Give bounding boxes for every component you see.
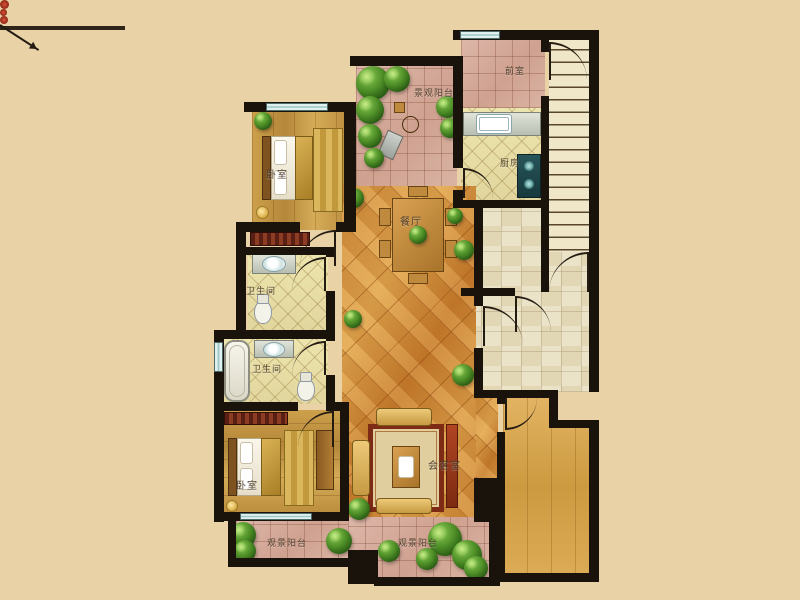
window <box>460 31 500 39</box>
wall <box>244 222 300 232</box>
room-label: 卧室 <box>266 166 288 181</box>
wardrobe <box>224 412 288 425</box>
plant <box>452 364 474 386</box>
room-label: 前室 <box>505 64 525 77</box>
wall <box>541 96 549 208</box>
bathroom-basin <box>262 256 286 272</box>
wall <box>453 56 463 168</box>
room-label: 会客室 <box>428 457 461 472</box>
dining-chair <box>379 240 391 258</box>
dining-chair <box>408 186 428 197</box>
room-label: 餐厅 <box>400 213 422 228</box>
flower <box>0 9 7 16</box>
window <box>266 103 328 111</box>
wall <box>541 208 549 292</box>
kitchen-sink <box>476 114 512 134</box>
plant <box>378 540 400 562</box>
toilet <box>254 300 272 324</box>
toilet <box>297 378 315 401</box>
room-label: 卫生间 <box>246 284 276 297</box>
decor-rug <box>313 128 343 212</box>
plant <box>454 240 474 260</box>
window <box>240 513 312 520</box>
dining-chair <box>379 208 391 226</box>
garden-table <box>402 116 419 133</box>
wall <box>497 573 599 582</box>
room-label: 景观阳台 <box>414 86 454 99</box>
wall <box>589 420 599 582</box>
wall <box>497 432 505 573</box>
sliding-door-track <box>0 26 125 30</box>
stove <box>517 154 541 198</box>
room-label: 观景阳台 <box>267 536 307 549</box>
bed-blanket <box>295 136 313 200</box>
wall <box>340 402 349 521</box>
window <box>214 342 223 372</box>
plant <box>348 498 370 520</box>
wall <box>222 402 298 411</box>
table-runner <box>398 456 414 478</box>
wall <box>344 102 356 232</box>
sofa <box>376 498 432 514</box>
room-label: 卫生间 <box>252 362 282 375</box>
sofa <box>352 440 370 496</box>
background-patch <box>557 392 591 422</box>
wall <box>474 390 558 398</box>
wall <box>474 204 483 306</box>
room-label: 卧室 <box>236 477 258 492</box>
wall <box>374 577 500 586</box>
wall <box>453 200 549 208</box>
room-label: 观景阳台 <box>398 536 438 549</box>
room-front-room <box>461 38 545 108</box>
lamp <box>256 206 269 219</box>
wall-pillar <box>474 478 498 522</box>
flower <box>0 0 9 9</box>
wall <box>497 396 505 404</box>
plant <box>254 112 272 130</box>
plant <box>358 124 382 148</box>
sofa <box>376 408 432 426</box>
bed-pillow <box>240 442 253 464</box>
bathtub <box>224 340 250 402</box>
flower <box>0 16 8 24</box>
wall <box>541 40 549 52</box>
garden-chair <box>394 102 405 113</box>
plant <box>364 148 384 168</box>
wardrobe <box>250 232 310 246</box>
bed-blanket <box>261 438 281 496</box>
room-label: 厨房 <box>500 156 520 169</box>
plant <box>356 96 384 124</box>
wall <box>350 56 462 66</box>
wall <box>236 222 246 338</box>
bed-pillow <box>274 140 287 165</box>
wall <box>589 30 599 392</box>
plant <box>344 310 362 328</box>
plant <box>409 226 427 244</box>
wall <box>228 558 360 567</box>
plant <box>447 208 463 224</box>
bathroom-basin <box>263 342 285 357</box>
lamp <box>226 500 238 512</box>
dining-chair <box>408 273 428 284</box>
wall <box>214 330 335 339</box>
wall <box>461 288 515 296</box>
floor-plan-canvas: 卧室 景观阳台 前室 厨房 餐厅 卫生间 卫生间 卧室 会客室 观景阳台 观景阳… <box>0 0 800 600</box>
plant <box>384 66 410 92</box>
plant <box>416 548 438 570</box>
